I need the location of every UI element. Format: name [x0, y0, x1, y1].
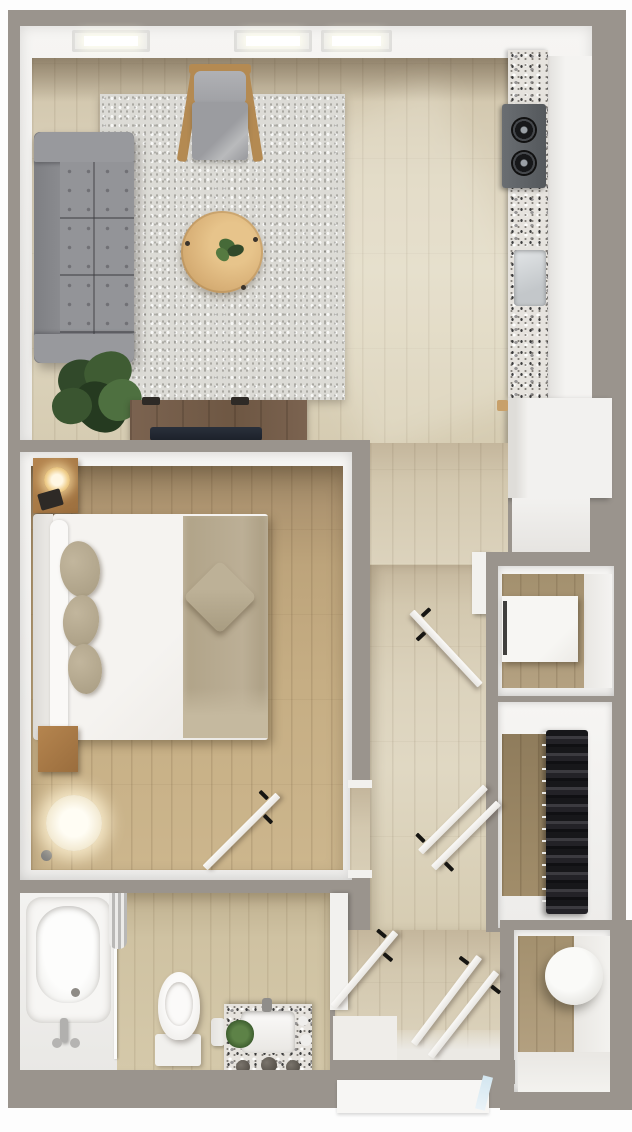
- door-jamb: [348, 780, 372, 788]
- toilet-lid-line: [165, 982, 193, 1026]
- fridge-handle: [497, 400, 508, 411]
- toilet-paper-holder: [211, 1018, 225, 1046]
- tub-drain: [71, 988, 80, 997]
- coffee-table: [181, 211, 263, 293]
- kitchen-base-cabinet: [512, 498, 590, 552]
- bedroom-doorway-opening: [350, 788, 370, 872]
- burner: [511, 150, 537, 176]
- hanger-hooks: [542, 732, 546, 912]
- tub-knob: [70, 1038, 80, 1048]
- soap-dish: [298, 1016, 308, 1026]
- tub-faucet: [60, 1018, 68, 1042]
- table-edge-dot: [253, 237, 258, 242]
- ceiling-light: [321, 30, 392, 52]
- door-jamb: [348, 870, 372, 878]
- console-speaker: [142, 397, 160, 405]
- utility-platform-bottom: [518, 1052, 610, 1092]
- tub-knob: [52, 1038, 62, 1048]
- blanket-foot-band: [183, 688, 268, 738]
- sofa-backrest: [34, 132, 60, 363]
- ceiling-light-glow: [246, 36, 300, 46]
- kitchen-cabinet-run: [548, 56, 592, 398]
- tv-screen: [150, 427, 262, 441]
- toilet-bowl: [158, 972, 200, 1040]
- soap-dish: [300, 1034, 312, 1046]
- chair-back-cushion: [194, 71, 246, 105]
- bedroom-bench: [38, 726, 78, 772]
- sofa-cushions: [60, 162, 134, 334]
- cooktop: [502, 104, 546, 188]
- console-speaker: [231, 397, 249, 405]
- tv-console: [130, 400, 307, 441]
- vanity-faucet: [262, 998, 272, 1012]
- refrigerator: [508, 398, 612, 498]
- table-edge-dot: [185, 241, 190, 246]
- ceiling-light: [72, 30, 150, 52]
- hallway-floor: [370, 443, 508, 565]
- storage-cabinet: [502, 596, 578, 662]
- cabinet-handle: [503, 601, 507, 655]
- hanging-clothes: [546, 730, 588, 914]
- bathtub: [26, 897, 111, 1023]
- sofa-armrest-top: [34, 132, 134, 162]
- kitchen-sink: [514, 250, 546, 306]
- vanity-plant: [226, 1020, 254, 1048]
- hallway-floor-lower: [370, 565, 486, 932]
- bedroom-right-wall: [350, 440, 370, 790]
- ceiling-light-glow: [84, 36, 138, 46]
- chair-seat-cushion: [192, 102, 248, 160]
- kitchen-countertop: [508, 50, 548, 398]
- nightstand-book: [37, 488, 64, 511]
- ceiling-light-glow: [332, 36, 381, 46]
- bed: [33, 514, 268, 740]
- burner: [511, 117, 537, 143]
- linen-closet-floor-white: [584, 574, 612, 688]
- nightstand: [33, 458, 78, 513]
- front-door-mat: [337, 1080, 489, 1113]
- table-edge-dot: [241, 285, 246, 290]
- water-heater-tank: [545, 947, 603, 1005]
- floor-lamp-base: [41, 850, 52, 861]
- bathroom-south-wall: [8, 1070, 348, 1108]
- shower-curtain: [109, 893, 127, 949]
- floor-lamp-shade: [46, 795, 102, 851]
- bathtub-basin: [36, 906, 100, 1003]
- potted-plant: [50, 350, 142, 438]
- accent-chair: [184, 64, 256, 164]
- ceiling-light: [234, 30, 312, 52]
- sofa: [34, 132, 134, 363]
- floor-plan: [0, 0, 632, 1132]
